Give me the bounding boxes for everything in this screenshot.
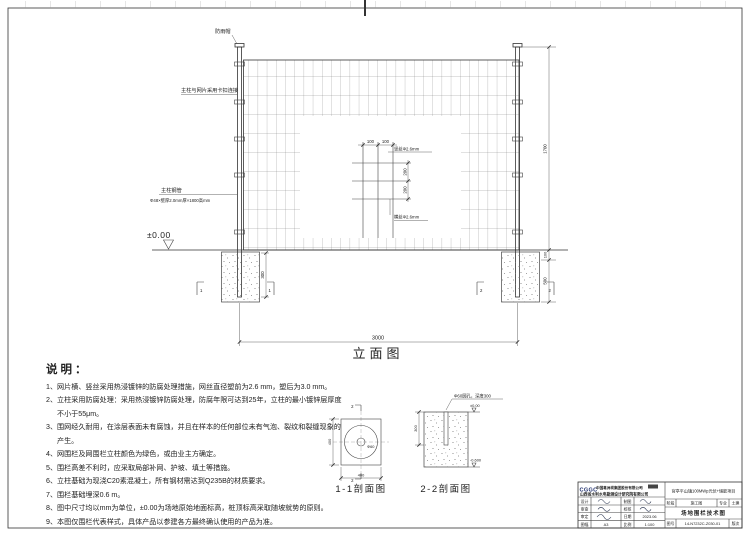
- s11-cut-mark-bottom: 2: [351, 478, 354, 483]
- drawing-sheet: 100 100 200 200 竖丝Φ2.6mm 横丝Φ2.6mm ±0.00 …: [0, 0, 750, 536]
- detail-dim-200a: 200: [403, 168, 408, 176]
- notes-title: 说明：: [46, 361, 342, 377]
- s22-caption: 2-2剖面图: [420, 483, 471, 495]
- tb-label-date: 日期: [624, 514, 632, 519]
- frame-ruler-ticks: [8, 1, 742, 8]
- tb-value-size: A3: [604, 522, 609, 527]
- tb-value-stage: 施工图: [691, 500, 703, 505]
- note-item-8: 8、图中尺寸均以mm为单位，±0.00为场地原始地面标高，桩顶标高采取随坡就势的…: [46, 502, 342, 515]
- tb-value-major: 土建: [732, 500, 740, 505]
- title-block: CGGC 中国葛洲坝集团股份有限公司 山西省水利水电勘测设计研究院有限公司 设计…: [578, 482, 742, 528]
- tb-project-name: 官亭平山镇100MWp光伏+储能项目: [672, 488, 736, 494]
- tb-value-date: 2023.06: [642, 514, 656, 519]
- tb-label-approve: 审定: [581, 514, 589, 519]
- tb-drawing-title: 场地围栏技术图: [681, 509, 726, 517]
- right-post-rain-cap: [513, 44, 522, 48]
- detail-dim-100b: 100: [382, 139, 390, 144]
- tb-label-check: 校核: [624, 507, 632, 512]
- right-foundation: [502, 252, 540, 302]
- rain-cap-label: 防雨帽: [215, 27, 231, 35]
- note-item-3: 3、围网经久耐用，在涂层表面未有腐蚀，并且在样本的任何部位未有气泡、裂纹和裂缝现…: [46, 421, 342, 448]
- tb-value-scale: 1:100: [645, 522, 656, 527]
- post-pipe-label: 主柱钢管: [161, 186, 182, 194]
- tb-label-scale: 比例: [624, 522, 632, 527]
- s22-dim-depth: 300: [413, 424, 418, 431]
- dim-1700: 1700: [543, 144, 548, 154]
- dim-300: 300: [260, 271, 265, 279]
- company-name-line2: 山西省水利水电勘测设计研究院有限公司: [580, 492, 649, 497]
- elevation-caption: 立面图: [352, 346, 403, 361]
- fence-elevation: 100 100 200 200 竖丝Φ2.6mm 横丝Φ2.6mm ±0.00 …: [147, 27, 568, 361]
- mesh-detail-clearing: [300, 116, 461, 238]
- clip-connection-label: 主柱与网片采用卡扣连接: [181, 86, 238, 94]
- tb-value-number: 14-N7232C-Z030-01: [685, 521, 721, 526]
- company-name-line1: 中国葛洲坝集团股份有限公司: [596, 485, 643, 490]
- s22-hole-label: Φ60圆孔，深度300: [454, 393, 491, 400]
- note-item-4: 4、网围栏及网围栏立柱颜色为绿色，或由业主方确定。: [46, 448, 342, 461]
- s11-caption: 1-1剖面图: [335, 483, 386, 495]
- section-1-label-b: 1: [269, 288, 272, 293]
- s11-cut-mark-top: 2: [351, 404, 354, 409]
- note-item-6: 6、立柱基础为现浇C20素混凝土，所有钢材需达到Q235B的材质要求。: [46, 475, 342, 488]
- dim-3000: 3000: [372, 336, 384, 342]
- company-name-en-bar: [648, 485, 658, 489]
- tb-label-stage: 阶段: [667, 500, 675, 505]
- note-item-9: 9、本图仅围栏代表样式，具体产品以参建各方最终确认使用的产品为准。: [46, 516, 342, 529]
- detail-dim-100a: 100: [367, 139, 375, 144]
- s11-dim-width: 400: [358, 473, 365, 478]
- left-post-rain-cap: [235, 44, 244, 48]
- tb-label-number: 图号: [667, 521, 675, 526]
- tb-label-major: 专业: [719, 500, 727, 505]
- post-pipe-spec: Φ48×壁厚2.0mm厚×1800高mm: [150, 197, 211, 204]
- ground-level-text: ±0.00: [147, 230, 171, 240]
- left-foundation: [222, 252, 260, 302]
- level-symbol: [164, 240, 174, 249]
- section-1-label-a: 1: [200, 288, 203, 293]
- s22-post-hole: [444, 412, 448, 445]
- tb-label-draft: 制图: [624, 499, 632, 504]
- horizontal-wire-label: 横丝Φ2.6mm: [394, 214, 420, 221]
- section-2-2: 300 Φ60圆孔，深度300 ±0.00 -0.600 2-2剖面图: [413, 393, 503, 496]
- note-item-2: 2、立柱采用防腐处理：采用热浸镀锌防腐处理，防腐年限可达到25年，立柱的最小镀锌…: [46, 394, 342, 421]
- s22-level-top: ±0.00: [470, 403, 481, 408]
- tb-label-rev: 版次: [732, 521, 740, 526]
- note-item-5: 5、围栏高差不利时，应采取局部补网、护坡、填土等措施。: [46, 462, 342, 475]
- detail-dim-200b: 200: [403, 186, 408, 194]
- note-item-7: 7、围栏基础埋深0.6 m。: [46, 489, 342, 502]
- note-item-1: 1、网片横、竖丝采用热浸镀锌的防腐处理措施，网丝直径塑前为2.6 mm，塑后为3…: [46, 381, 342, 394]
- span-dimension: 3000: [238, 303, 519, 346]
- tb-label-design: 设计: [581, 499, 589, 504]
- s22-level-bottom: -0.600: [470, 458, 482, 463]
- notes-block: 说明： 1、网片横、竖丝采用热浸镀锌的防腐处理措施，网丝直径塑前为2.6 mm，…: [46, 361, 342, 529]
- rain-cap-leader: [232, 35, 237, 44]
- dim-500: 500: [543, 277, 548, 285]
- tb-label-size: 图幅: [581, 522, 589, 527]
- tb-label-review: 审查: [581, 507, 589, 512]
- section-2-label-a: 2: [480, 288, 483, 293]
- vertical-wire-label: 竖丝Φ2.6mm: [394, 146, 420, 152]
- s11-hole-dia: Φ60: [367, 444, 375, 449]
- dim-100: 100: [543, 251, 548, 258]
